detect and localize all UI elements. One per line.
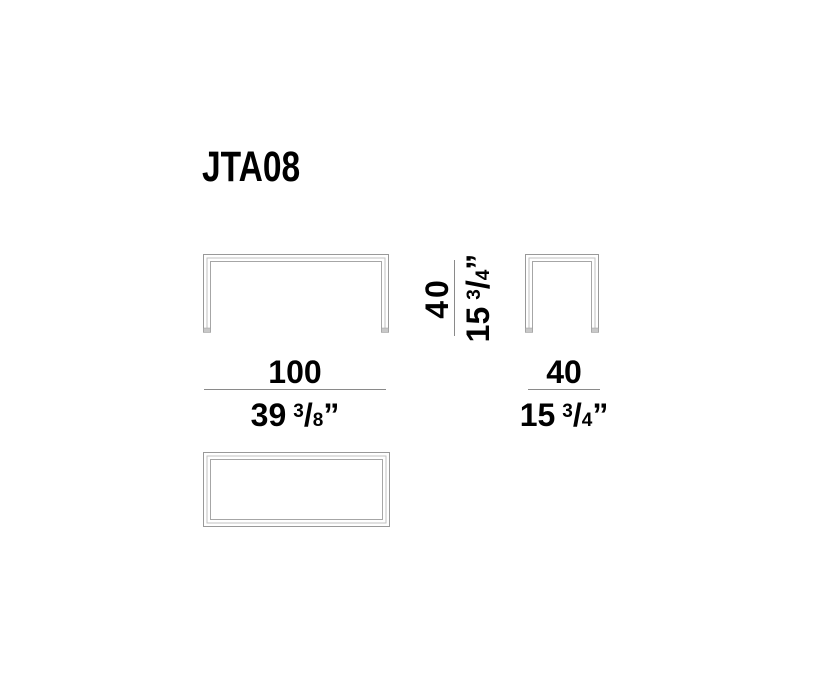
product-spec-sheet: JTA08 100 393/8” 40 153/4” 40 153/4”: [0, 0, 840, 679]
height-inch-unit-mark: ”: [460, 254, 496, 270]
depth-inch-unit-mark: ”: [592, 397, 608, 433]
top-view-drawing: [203, 452, 390, 527]
side-outer-contour: [526, 255, 599, 333]
height-inch-numerator: 3: [464, 289, 485, 300]
width-inch-unit-mark: ”: [323, 397, 339, 433]
side-view-drawing: [525, 254, 599, 334]
depth-dimension: 40 153/4”: [528, 356, 600, 437]
width-inch-denominator: 8: [313, 410, 324, 431]
front-mid-contour: [207, 258, 385, 333]
height-inch-slash: /: [460, 280, 496, 289]
width-inch-numerator: 3: [293, 401, 304, 422]
front-left-foot-glide: [204, 328, 211, 333]
side-mid-contour: [529, 258, 595, 333]
depth-cm-value: 40: [546, 356, 582, 389]
front-inner-contour: [211, 262, 382, 333]
width-cm-value: 100: [268, 356, 321, 389]
height-inch-denominator: 4: [473, 270, 494, 281]
width-inch-slash: /: [304, 397, 313, 433]
depth-inch-denominator: 4: [582, 410, 593, 431]
top-outer-contour: [204, 453, 390, 527]
side-right-foot-glide: [592, 328, 599, 333]
depth-inch-value: 153/4”: [520, 390, 609, 437]
side-inner-contour: [533, 262, 592, 333]
depth-inch-whole: 15: [520, 397, 556, 433]
top-inner-contour: [211, 460, 383, 520]
top-mid-contour: [207, 456, 386, 523]
height-dimension: 40 153/4”: [423, 243, 497, 353]
front-outer-contour: [204, 255, 389, 333]
height-cm-value: 40: [421, 277, 454, 319]
width-inch-value: 393/8”: [251, 390, 340, 437]
side-left-foot-glide: [526, 328, 533, 333]
width-inch-whole: 39: [251, 397, 287, 433]
height-inch-value: 153/4”: [455, 254, 500, 343]
height-inch-whole: 15: [460, 307, 496, 343]
depth-inch-numerator: 3: [562, 401, 573, 422]
front-view-drawing: [203, 254, 389, 334]
front-right-foot-glide: [382, 328, 389, 333]
depth-inch-slash: /: [573, 397, 582, 433]
width-dimension: 100 393/8”: [204, 356, 386, 437]
product-code: JTA08: [202, 146, 300, 189]
